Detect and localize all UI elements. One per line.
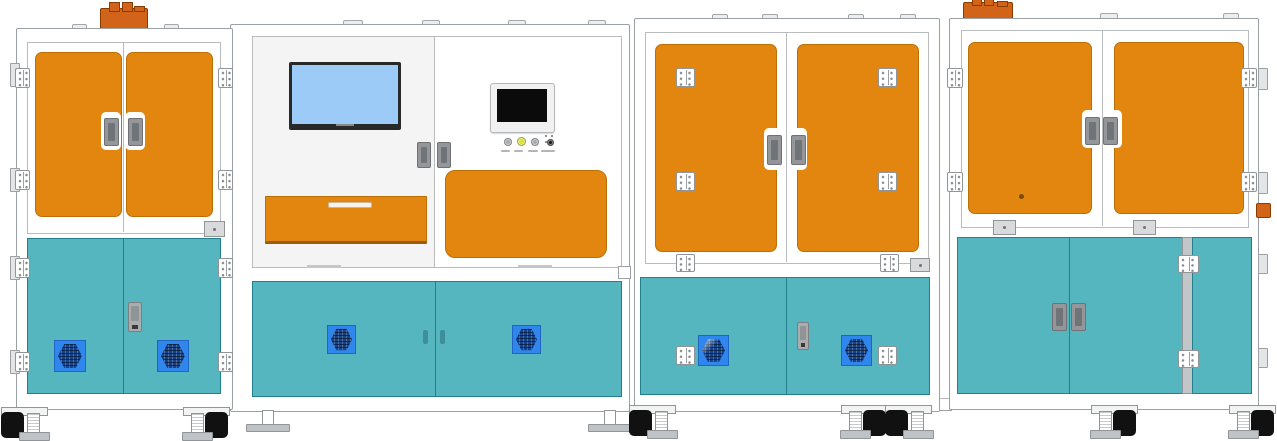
module-2-control-station <box>230 0 630 441</box>
door-divider <box>123 42 124 232</box>
leveling-screw <box>27 413 40 434</box>
door-screw <box>1019 194 1024 199</box>
hmi-screen[interactable] <box>497 89 547 122</box>
hinge <box>218 352 233 372</box>
button-micro-label <box>541 150 555 152</box>
door-handle[interactable] <box>104 118 119 146</box>
side-connector <box>1256 203 1271 218</box>
vent-fan <box>841 335 872 366</box>
door-face-hinge <box>878 68 897 87</box>
fan-blade-grille <box>330 328 353 351</box>
hmi-panel <box>490 83 555 133</box>
orange-door-right[interactable] <box>797 44 919 252</box>
monitor-screen <box>292 65 398 124</box>
side-lug <box>1258 68 1268 90</box>
hinge <box>15 352 30 372</box>
side-lug <box>1258 172 1268 194</box>
production-line-diagram <box>0 0 1277 441</box>
hinge <box>218 68 233 88</box>
right-panel-door-handle[interactable] <box>437 142 451 168</box>
caster-leveling-foot <box>628 405 676 439</box>
orange-door-left[interactable] <box>968 42 1092 214</box>
push-button-yellow[interactable] <box>517 137 526 146</box>
caster-leveling-foot <box>1090 405 1138 439</box>
push-button-black[interactable] <box>547 139 554 146</box>
terminal-step <box>997 1 1008 7</box>
caster-leveling-foot <box>1228 405 1276 439</box>
vent-fan <box>157 340 189 372</box>
terminal-block <box>100 8 148 29</box>
hinge <box>947 68 963 88</box>
door-handle[interactable] <box>1052 303 1067 331</box>
monitor-bezel-buttons <box>336 124 354 126</box>
left-panel-door-handle[interactable] <box>417 142 431 168</box>
terminal-step <box>134 6 145 12</box>
door-handle[interactable] <box>767 135 782 165</box>
junction-box <box>618 266 631 279</box>
foot-pad <box>588 424 632 432</box>
door-face-hinge <box>676 68 695 87</box>
foot-pad <box>182 432 213 441</box>
orange-access-panel <box>445 170 607 258</box>
leveling-screw <box>1099 411 1112 432</box>
hinge <box>947 172 963 192</box>
orange-drawer[interactable] <box>265 196 427 244</box>
door-latch[interactable] <box>128 302 142 332</box>
hinge <box>218 258 233 278</box>
hinge <box>1178 255 1199 273</box>
hinge <box>15 68 30 88</box>
teal-door-right[interactable] <box>1069 237 1185 394</box>
hinge <box>880 254 899 272</box>
leveling-screw <box>191 413 204 434</box>
side-lug <box>1258 348 1268 368</box>
door-handle[interactable] <box>1085 117 1100 145</box>
hinge <box>15 170 30 190</box>
door-face-hinge <box>878 346 897 365</box>
foot-pad <box>19 432 50 441</box>
t-foot <box>246 410 288 432</box>
module-3-process-cabinet <box>632 0 940 441</box>
door-handle[interactable] <box>1071 303 1086 331</box>
fan-blade-grille <box>701 338 726 363</box>
hinge <box>1241 172 1257 192</box>
fan-blade-grille <box>57 343 83 369</box>
corner-plate <box>204 221 225 237</box>
door-pull-slit[interactable] <box>423 330 428 344</box>
t-foot <box>588 410 630 432</box>
caster-leveling-foot <box>0 407 48 441</box>
hinge <box>1178 350 1199 368</box>
caster-leveling-foot <box>840 405 888 439</box>
door-pull-slit[interactable] <box>440 330 445 344</box>
door-face-hinge <box>676 346 695 365</box>
drawer-handle-slot <box>328 202 372 208</box>
mount-plate <box>1133 220 1156 235</box>
door-handle[interactable] <box>791 135 806 165</box>
door-face-hinge <box>878 172 897 191</box>
door-latch[interactable] <box>797 322 809 350</box>
door-face-hinge <box>676 172 695 191</box>
fan-blade-grille <box>160 343 186 369</box>
vent-fan <box>327 325 356 354</box>
module-1-left-cabinet <box>14 0 254 441</box>
caster-leveling-foot <box>182 407 230 441</box>
terminal-bump <box>122 2 133 12</box>
foot-pad <box>246 424 290 432</box>
leveling-screw <box>655 411 668 432</box>
mount-plate <box>993 220 1016 235</box>
terminal-bump <box>984 0 994 6</box>
door-handle[interactable] <box>128 118 143 146</box>
door-handle[interactable] <box>1103 117 1118 145</box>
leveling-screw <box>911 411 924 432</box>
teal-side-panel <box>1192 237 1252 394</box>
corner-plate <box>910 258 930 272</box>
hinge <box>676 254 695 272</box>
fan-blade-grille <box>515 328 538 351</box>
foot-pad <box>1090 430 1121 439</box>
foot-pad <box>840 430 871 439</box>
push-button-gray[interactable] <box>531 138 539 146</box>
button-micro-label <box>501 150 510 152</box>
terminal-bump <box>109 2 120 12</box>
module-4-right-cabinet <box>945 0 1277 441</box>
panel-bottom-mark <box>307 265 341 268</box>
door-divider <box>786 32 787 262</box>
vent-fan <box>512 325 541 354</box>
foot-pad <box>1228 430 1259 439</box>
leveling-screw <box>1237 411 1250 432</box>
vent-fan <box>698 335 729 366</box>
hinge <box>1241 68 1257 88</box>
caster-leveling-foot <box>884 405 932 439</box>
hinge <box>15 258 30 278</box>
foot-pad <box>647 430 678 439</box>
fan-blade-grille <box>844 338 869 363</box>
terminal-bump <box>972 0 982 6</box>
orange-door-right[interactable] <box>1114 42 1244 214</box>
leveling-screw <box>849 411 862 432</box>
button-micro-label <box>528 150 538 152</box>
vent-fan <box>54 340 86 372</box>
hinge <box>218 170 233 190</box>
panel-bottom-mark <box>518 265 552 268</box>
display-monitor <box>289 62 401 130</box>
foot-pad <box>903 430 934 439</box>
button-micro-label <box>514 150 523 152</box>
orange-door-left[interactable] <box>655 44 777 252</box>
side-lug <box>1258 254 1268 274</box>
push-button-gray[interactable] <box>504 138 512 146</box>
